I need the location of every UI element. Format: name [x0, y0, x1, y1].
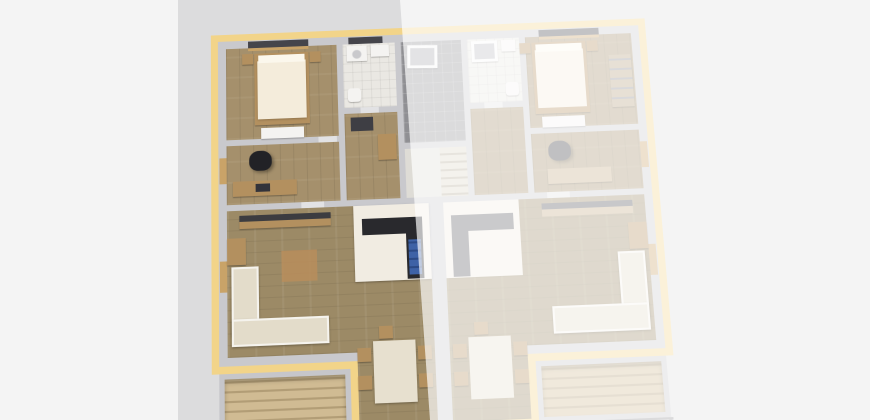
office-chair-left: [249, 150, 272, 171]
dining-chair-left-5: [379, 326, 393, 339]
sink-left: [371, 45, 389, 57]
washing-machine-left: [347, 46, 368, 62]
nightstand-right-a: [519, 43, 531, 54]
dining-chair-right-4: [515, 369, 530, 384]
tall-cabinet-left: [227, 238, 246, 266]
door-bath-right: [484, 102, 503, 109]
toilet-left: [348, 88, 362, 102]
balcony-left: [219, 369, 352, 420]
nightstand-left-a: [242, 54, 253, 65]
office-chair-right: [548, 140, 572, 161]
canvas-background: [0, 0, 870, 420]
dining-chair-right-3: [513, 341, 528, 355]
door-bedroom-left: [318, 136, 337, 143]
laptop-left: [256, 183, 271, 192]
dining-chair-left-1: [357, 348, 371, 362]
wardrobe-right: [608, 54, 634, 107]
tall-cabinet-right: [628, 222, 649, 249]
sofa-seat-right: [552, 302, 651, 333]
dining-chair-left-4: [419, 373, 433, 388]
dining-table-right: [468, 335, 514, 399]
nightstand-right-b: [586, 40, 598, 51]
floor-plan-3d: [208, 17, 684, 420]
skylight-bath-right: [471, 40, 498, 62]
bench-right: [542, 115, 585, 127]
sink-right: [501, 40, 516, 52]
door-living-right: [547, 191, 570, 198]
sofa-seat-left: [232, 316, 330, 348]
window-living-left-wall: [220, 261, 227, 292]
skylight-frame: [407, 45, 437, 68]
dining-chair-right-5: [474, 322, 488, 335]
window-office-left-wall: [219, 158, 226, 184]
kitchen-appliance-blue: [408, 239, 422, 275]
nightstand-left-b: [309, 51, 320, 62]
bed-duvet-right: [535, 48, 587, 108]
bed-duvet-left: [257, 59, 307, 119]
stair-flight: [440, 146, 469, 196]
bench-left: [261, 126, 304, 139]
room-hallway-right: [470, 107, 528, 195]
doormat-left: [351, 117, 374, 132]
door-living-left: [301, 201, 324, 208]
window-bath-left: [348, 36, 382, 44]
dining-chair-left-2: [358, 376, 372, 391]
rug-left: [281, 249, 317, 281]
dining-chair-right-1: [453, 344, 467, 358]
desk-right: [547, 166, 612, 184]
dining-table-left: [373, 339, 418, 403]
toilet-right: [505, 82, 519, 96]
dining-chair-right-2: [454, 371, 469, 386]
dining-chair-left-3: [418, 345, 432, 359]
kitchen-counter-right-v: [451, 215, 471, 277]
balcony-right: [536, 356, 672, 420]
door-bath-left: [360, 107, 378, 114]
fade-overlay-left-margin: [0, 0, 178, 420]
hall-dresser-left: [378, 134, 397, 160]
